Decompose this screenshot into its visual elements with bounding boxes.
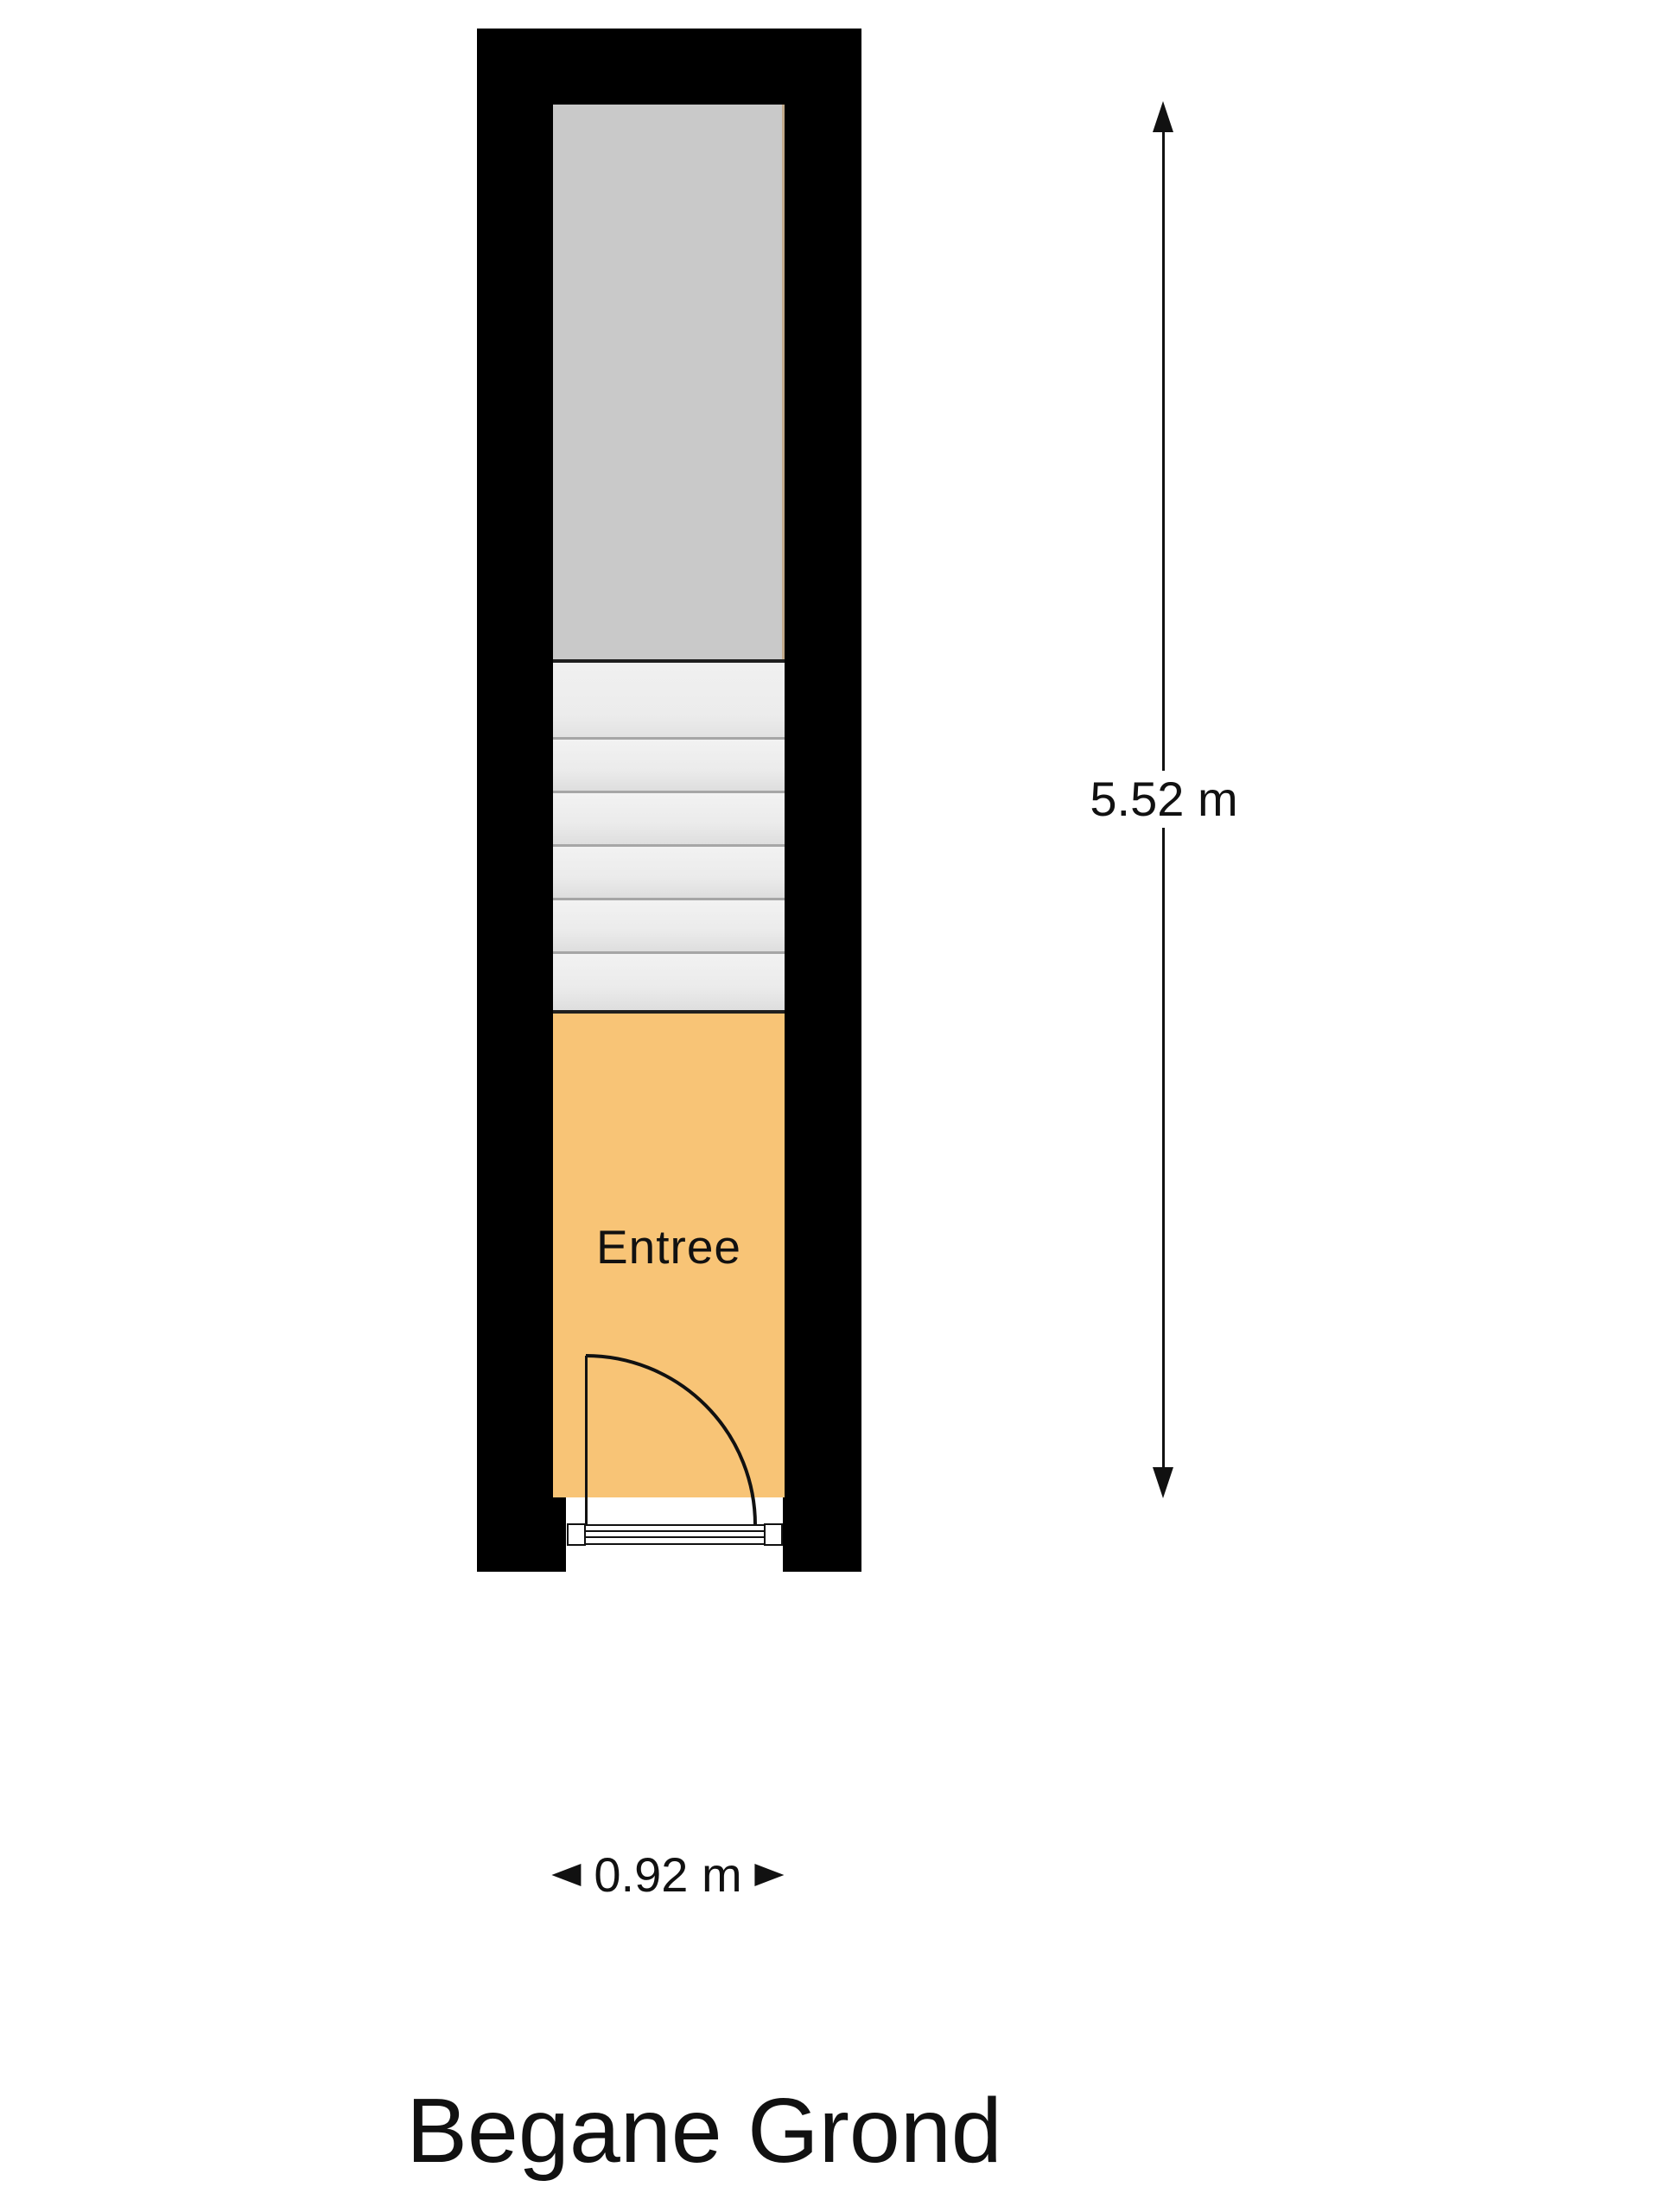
floor-plan-canvas: Entree 5.52 m 0.92 m Begane Grond	[0, 0, 1659, 2212]
building-interior: Entree	[553, 105, 785, 1497]
arrow-right-icon	[755, 1864, 785, 1886]
vertical-dimension-line	[1162, 828, 1165, 1471]
horizontal-dimension-label: 0.92 m	[594, 1851, 741, 1899]
room-entree-label: Entree	[553, 1219, 785, 1274]
arrow-left-icon	[551, 1864, 581, 1886]
door-leaf	[585, 1356, 588, 1543]
door-swing-arc	[553, 1331, 786, 1547]
door-sill	[586, 1524, 765, 1545]
staircase	[553, 663, 785, 1014]
vertical-dimension-line	[1162, 130, 1165, 771]
stair-tread	[553, 847, 785, 900]
door-post-left	[567, 1523, 586, 1546]
door-post-right	[764, 1523, 783, 1546]
staircase-treads	[553, 740, 785, 1010]
horizontal-dimension: 0.92 m	[551, 1851, 784, 1899]
arrow-down-icon	[1153, 1467, 1173, 1498]
stair-tread	[553, 900, 785, 954]
arrow-up-icon	[1153, 101, 1173, 132]
door-sill-line	[586, 1536, 765, 1538]
stair-tread	[553, 740, 785, 793]
stair-tread	[553, 793, 785, 847]
upper-room	[553, 105, 785, 659]
stair-tread	[553, 954, 785, 1010]
door-sill-line	[586, 1530, 765, 1532]
stair-landing	[553, 663, 785, 740]
vertical-dimension-label: 5.52 m	[1090, 775, 1237, 823]
page-title: Begane Grond	[406, 2085, 1002, 2177]
